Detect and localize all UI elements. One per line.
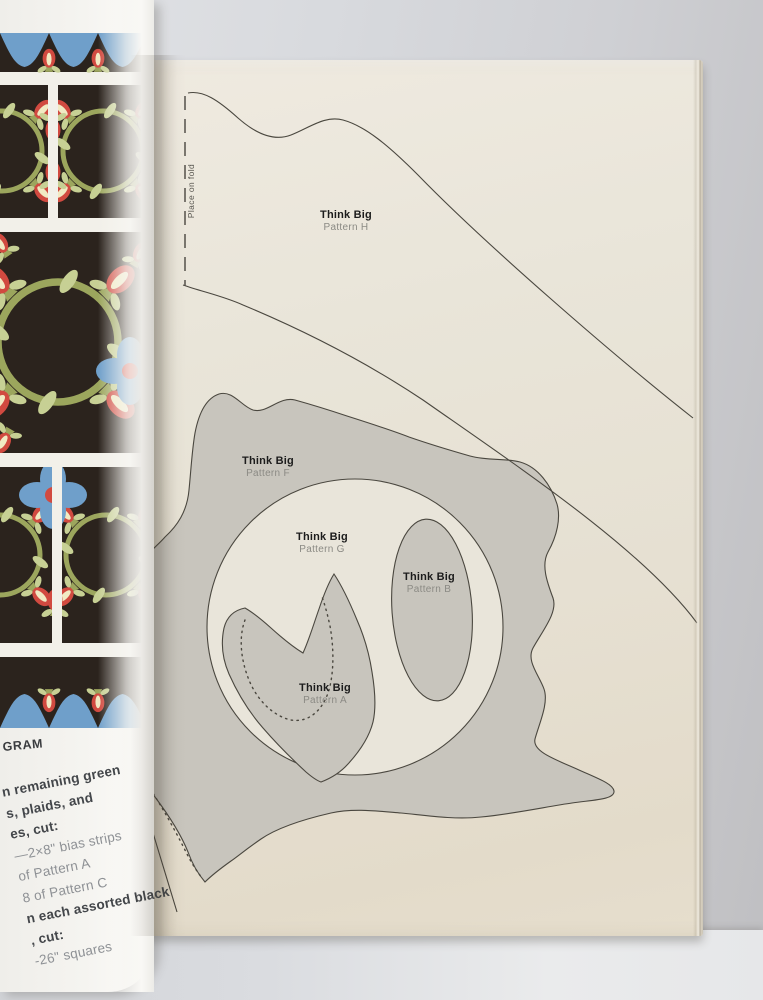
pattern-b-title: Think Big [381,571,477,584]
pattern-g-title: Think Big [274,531,370,544]
pattern-a-label: Think Big Pattern A [277,682,373,707]
pattern-h-subtitle: Pattern H [298,222,394,234]
pattern-f-title: Think Big [220,455,316,468]
pattern-h-label: Think Big Pattern H [298,209,394,234]
pattern-g-label: Think Big Pattern G [274,531,370,556]
pattern-f-subtitle: Pattern F [220,468,316,480]
quilt-page: GRAM n remaining green s, plaids, and es… [0,0,154,992]
book-photo: Place on fold Think Big Pattern H Think … [0,0,763,1000]
quilt-sashing [48,85,58,218]
page-stack-edge [693,60,703,936]
pattern-drawing [143,60,703,936]
pattern-b-label: Think Big Pattern B [381,571,477,596]
pattern-h-title: Think Big [298,209,394,222]
pattern-h-top-edge [188,92,693,418]
pattern-a-subtitle: Pattern A [277,695,373,707]
place-on-fold-label: Place on fold [186,156,198,226]
pattern-f-label: Think Big Pattern F [220,455,316,480]
pattern-a-title: Think Big [277,682,373,695]
quilt-sashing [52,467,62,643]
diagram-heading-fragment: GRAM [2,736,44,753]
pattern-page: Place on fold Think Big Pattern H Think … [143,60,703,936]
pattern-g-subtitle: Pattern G [274,544,370,556]
cutting-instructions: n remaining green s, plaids, and es, cut… [0,746,223,972]
pattern-b-subtitle: Pattern B [381,584,477,596]
